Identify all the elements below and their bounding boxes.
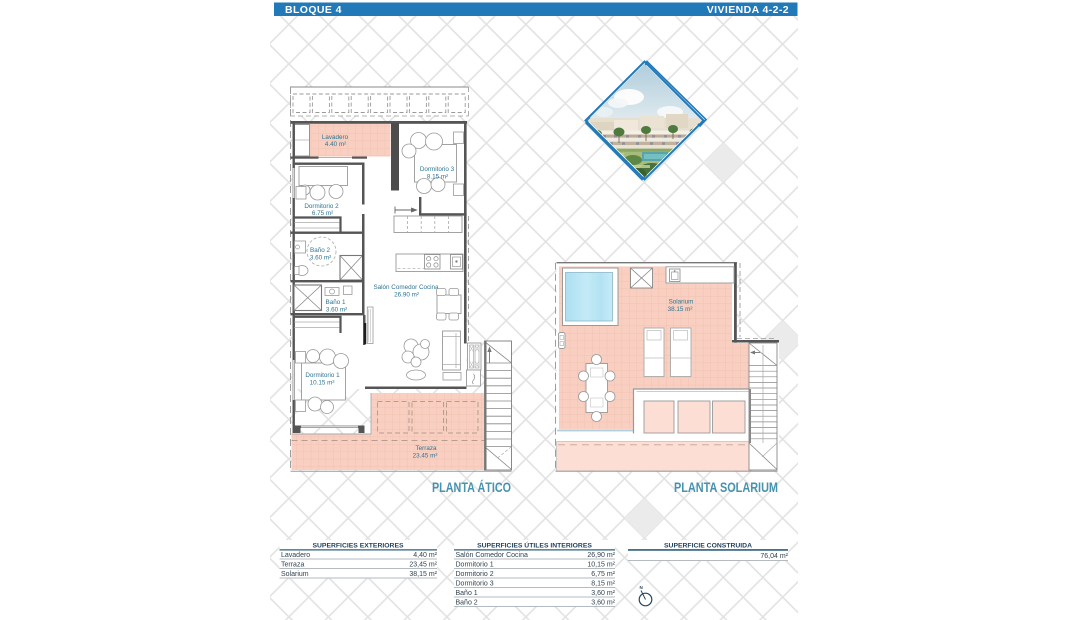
svg-text:Terraza: Terraza	[416, 445, 437, 452]
svg-text:N: N	[640, 585, 643, 590]
svg-text:BLOQUE 4: BLOQUE 4	[285, 4, 342, 16]
svg-text:26,90 m²: 26,90 m²	[587, 552, 615, 559]
svg-text:10.15 m²: 10.15 m²	[310, 380, 335, 387]
svg-text:76,04 m²: 76,04 m²	[760, 553, 788, 560]
svg-text:26.90 m²: 26.90 m²	[394, 292, 419, 299]
svg-text:SUPERFICIES ÚTILES INTERIORES: SUPERFICIES ÚTILES INTERIORES	[477, 541, 592, 550]
svg-text:Solarium: Solarium	[281, 571, 309, 578]
svg-text:Dormitorio 2: Dormitorio 2	[304, 203, 339, 210]
svg-text:3.60 m²: 3.60 m²	[310, 255, 331, 262]
svg-text:38,15 m²: 38,15 m²	[409, 571, 437, 578]
svg-text:Baño 1: Baño 1	[456, 590, 478, 597]
svg-text:PLANTA SOLARIUM: PLANTA SOLARIUM	[674, 479, 778, 495]
svg-text:PLANTA ÁTICO: PLANTA ÁTICO	[432, 479, 511, 495]
svg-text:Dormitorio 1: Dormitorio 1	[456, 562, 494, 569]
svg-text:23,45 m²: 23,45 m²	[409, 562, 437, 569]
svg-text:38.15 m²: 38.15 m²	[668, 306, 693, 313]
svg-text:8,15 m²: 8,15 m²	[591, 581, 615, 588]
svg-text:Solarium: Solarium	[669, 299, 694, 306]
svg-text:Salón Comedor Cocina: Salón Comedor Cocina	[373, 284, 439, 291]
svg-text:Lavadero: Lavadero	[281, 552, 310, 559]
svg-text:3,60 m²: 3,60 m²	[591, 590, 615, 597]
svg-text:Dormitorio 3: Dormitorio 3	[456, 581, 494, 588]
svg-text:SUPERFICIE CONSTRUIDA: SUPERFICIE CONSTRUIDA	[664, 543, 752, 550]
svg-text:10,15 m²: 10,15 m²	[587, 562, 615, 569]
svg-text:Lavadero: Lavadero	[322, 134, 349, 141]
svg-text:6.75 m²: 6.75 m²	[312, 210, 333, 217]
svg-text:Dormitorio 3: Dormitorio 3	[420, 166, 455, 173]
svg-text:6,75 m²: 6,75 m²	[591, 571, 615, 578]
svg-text:Dormitorio 2: Dormitorio 2	[456, 571, 494, 578]
svg-text:Terraza: Terraza	[281, 562, 304, 569]
svg-text:VIVIENDA 4-2-2: VIVIENDA 4-2-2	[707, 4, 789, 16]
svg-text:23.45 m²: 23.45 m²	[413, 453, 438, 460]
svg-text:4.40 m²: 4.40 m²	[325, 141, 346, 148]
svg-text:Dormitorio 1: Dormitorio 1	[305, 372, 340, 379]
svg-text:Baño 2: Baño 2	[310, 247, 330, 254]
svg-text:Baño 1: Baño 1	[326, 299, 346, 306]
svg-text:Baño 2: Baño 2	[456, 600, 478, 607]
svg-text:8.15 m²: 8.15 m²	[427, 174, 448, 181]
svg-text:3,60 m²: 3,60 m²	[591, 600, 615, 607]
svg-text:SUPERFICIES EXTERIORES: SUPERFICIES EXTERIORES	[312, 543, 403, 550]
svg-text:3.60 m²: 3.60 m²	[326, 307, 347, 314]
svg-text:Salón Comedor Cocina: Salón Comedor Cocina	[456, 552, 528, 559]
svg-text:4,40 m²: 4,40 m²	[413, 552, 437, 559]
